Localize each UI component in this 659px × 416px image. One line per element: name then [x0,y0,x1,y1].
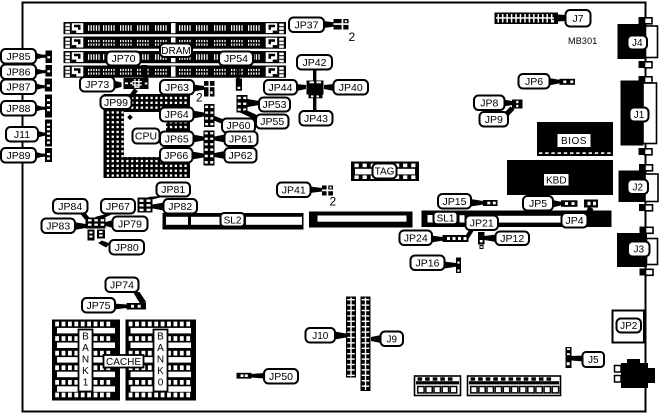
svg-text:JP54: JP54 [224,53,248,65]
svg-text:JP16: JP16 [416,257,440,269]
svg-text:2: 2 [330,195,337,209]
svg-text:JP84: JP84 [58,201,82,213]
svg-text:J5: J5 [588,355,599,366]
svg-text:JP79: JP79 [118,218,142,230]
svg-text:J2: J2 [632,182,643,193]
svg-text:TAG: TAG [375,167,395,178]
svg-text:J11: J11 [14,129,30,141]
svg-text:JP89: JP89 [7,150,31,162]
svg-text:JP4: JP4 [565,215,583,227]
svg-text:JP15: JP15 [443,196,467,208]
svg-text:JP42: JP42 [303,57,327,69]
svg-text:J3: J3 [633,245,644,256]
svg-text:JP70: JP70 [112,53,136,65]
svg-text:JP80: JP80 [115,242,139,254]
svg-text:JP66: JP66 [164,150,188,162]
svg-text:JP8: JP8 [480,97,498,109]
svg-text:JP50: JP50 [269,371,293,383]
svg-text:JP21: JP21 [470,217,494,229]
svg-text:1: 1 [83,378,89,389]
svg-text:N: N [157,355,164,366]
svg-text:JP86: JP86 [7,66,31,78]
svg-text:N: N [82,355,89,366]
svg-text:CACHE: CACHE [106,357,141,368]
svg-text:JP74: JP74 [110,279,134,291]
svg-text:JP24: JP24 [404,232,428,244]
svg-text:J1: J1 [634,110,645,121]
svg-text:JP44: JP44 [269,82,293,94]
svg-text:JP87: JP87 [7,81,31,93]
svg-text:B: B [157,332,164,343]
svg-text:JP53: JP53 [263,99,287,111]
svg-text:KBD: KBD [546,176,567,187]
svg-text:JP81: JP81 [161,184,185,196]
svg-text:SL1: SL1 [437,214,455,225]
svg-text:K: K [82,366,89,377]
svg-text:K: K [157,366,164,377]
svg-text:JP82: JP82 [168,201,192,213]
svg-text:BIOS: BIOS [561,136,587,147]
svg-text:JP99: JP99 [104,97,128,109]
svg-text:J10: J10 [312,331,329,342]
svg-text:B: B [82,332,89,343]
svg-text:JP2: JP2 [620,321,638,332]
svg-text:JP75: JP75 [87,300,111,312]
svg-text:A: A [157,343,164,354]
svg-text:JP61: JP61 [229,133,253,145]
svg-text:JP5: JP5 [529,198,547,210]
svg-text:JP62: JP62 [229,150,253,162]
svg-text:JP43: JP43 [304,113,328,125]
svg-text:JP73: JP73 [85,79,109,91]
svg-text:JP63: JP63 [165,82,189,94]
svg-text:JP88: JP88 [7,103,31,115]
svg-text:JP83: JP83 [46,220,70,232]
svg-text:JP65: JP65 [165,133,189,145]
svg-text:JP85: JP85 [7,51,31,63]
svg-text:JP6: JP6 [525,76,543,88]
svg-text:CPU: CPU [135,131,157,143]
svg-text:2: 2 [196,91,203,105]
svg-text:JP41: JP41 [282,184,306,196]
svg-text:JP12: JP12 [500,233,524,245]
svg-text:DRAM: DRAM [161,46,190,57]
svg-text:0: 0 [158,378,164,389]
svg-text:JP60: JP60 [227,120,251,132]
svg-text:JP37: JP37 [295,19,319,31]
svg-text:JP55: JP55 [260,116,284,128]
svg-text:MB301: MB301 [568,36,598,46]
svg-text:JP67: JP67 [106,201,130,213]
svg-text:SL2: SL2 [224,215,242,226]
svg-text:JP9: JP9 [485,114,503,126]
svg-text:J7: J7 [572,13,583,25]
svg-text:J9: J9 [386,334,397,345]
svg-text:2: 2 [349,30,356,44]
svg-text:A: A [82,343,89,354]
svg-text:JP40: JP40 [339,82,363,94]
svg-text:JP64: JP64 [165,109,189,121]
svg-text:J4: J4 [632,38,643,49]
